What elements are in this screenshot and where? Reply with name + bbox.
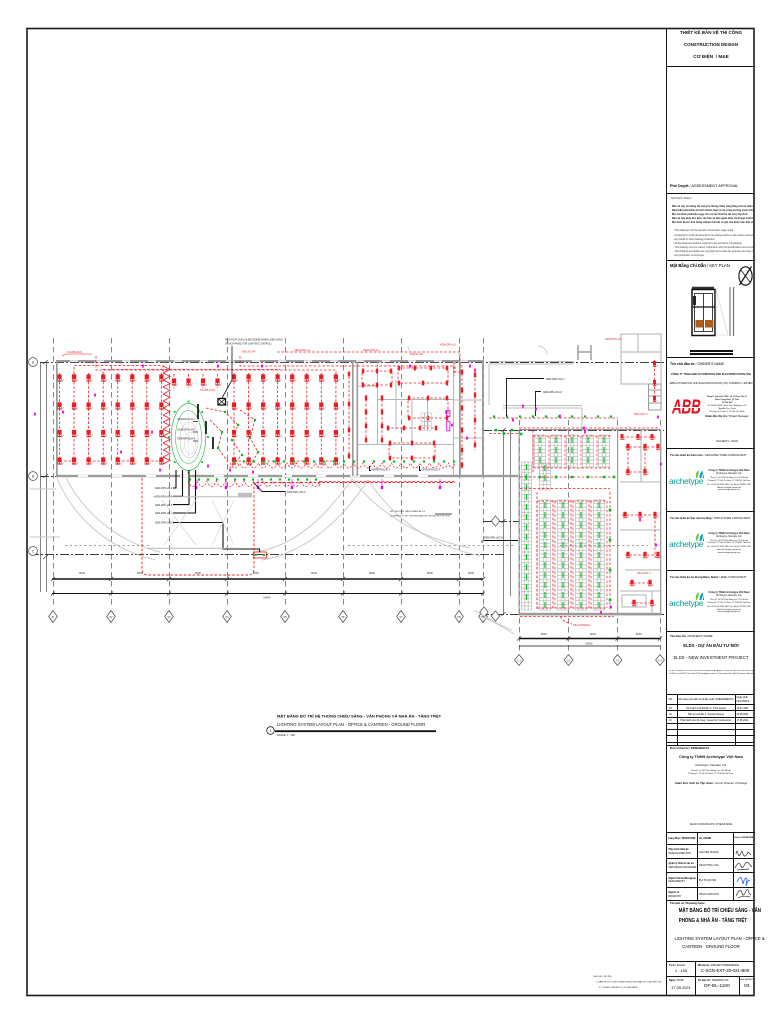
svg-text:KEM-DPN-LM-2: KEM-DPN-LM-2: [178, 429, 196, 432]
svg-text:CS-DB-LIGN: CS-DB-LIGN: [67, 350, 82, 354]
svg-text:DB-CANTEEN: DB-CANTEEN: [573, 623, 590, 627]
svg-text:8000: 8000: [636, 632, 642, 636]
svg-text:KEM-DPN-L8: KEM-DPN-L8: [605, 337, 621, 341]
svg-text:SCALE: 1 : 150: SCALE: 1 : 150: [277, 733, 295, 737]
svg-text:KEM-DPN-LNC-2: KEM-DPN-LNC-2: [287, 491, 306, 494]
svg-text:8000: 8000: [541, 632, 547, 636]
svg-text:8000: 8000: [195, 571, 201, 575]
svg-text:KEM-DPN-LNC-7: KEM-DPN-LNC-7: [546, 378, 565, 381]
svg-text:KEM-DPN-L6: KEM-DPN-L6: [440, 343, 456, 347]
svg-text:8000: 8000: [427, 571, 433, 575]
svg-text:02: 02: [109, 615, 113, 619]
svg-text:C4: C4: [658, 659, 662, 663]
svg-text:C3: C3: [616, 659, 620, 663]
svg-text:1: 1: [270, 729, 272, 733]
svg-text:KY THUAT / REFER TO COORDINATE: KY THUAT / REFER TO COORDINATE: [599, 986, 638, 989]
svg-text:8000: 8000: [590, 632, 596, 636]
svg-text:1. BAN VE THI CONG THAM CHIEU: 1. BAN VE THI CONG THAM CHIEU DEN BAN VE…: [596, 981, 662, 984]
svg-text:KEM-DPN-LNC-3: KEM-DPN-LNC-3: [372, 469, 391, 472]
svg-text:KEM-DPN-L4: KEM-DPN-L4: [363, 348, 379, 352]
svg-text:8000: 8000: [79, 571, 85, 575]
svg-text:KEM-DPN-LNC-1: KEM-DPN-LNC-1: [155, 522, 174, 525]
svg-text:GHI CHU / NOTES:: GHI CHU / NOTES:: [593, 976, 613, 978]
svg-text:DB-CANT-1: DB-CANT-1: [637, 571, 651, 575]
svg-text:05: 05: [283, 615, 287, 619]
svg-text:06: 06: [341, 615, 345, 619]
svg-text:KEM-DPN-LNC-4: KEM-DPN-LNC-4: [422, 469, 441, 472]
svg-text:LIGHTING SYSTEM LAYOUT PLAN -: LIGHTING SYSTEM LAYOUT PLAN - OFFICE & C…: [277, 722, 425, 727]
svg-text:DB-LIG-2/4: DB-LIG-2/4: [242, 350, 256, 354]
svg-text:KEM-DPN-LNC-8: KEM-DPN-LNC-8: [543, 391, 562, 394]
svg-text:KICH HOAT QUA (CB ENCODER) WHE: KICH HOAT QUA (CB ENCODER) WHEN CHIEU SA…: [225, 339, 283, 342]
svg-text:KEM-DPN-LM-7: KEM-DPN-LM-7: [155, 512, 173, 515]
svg-text:(TOUCH PANEL FOR LIGHTING CONT: (TOUCH PANEL FOR LIGHTING CONTROL): [225, 343, 272, 346]
svg-text:KEM-DPN-LM-3: KEM-DPN-LM-3: [178, 438, 196, 441]
svg-text:KEM-DPN-LM-4: KEM-DPN-LM-4: [155, 487, 173, 490]
svg-text:03: 03: [167, 615, 171, 619]
svg-text:MẶT BẰNG BỐ TRÍ HỆ THỐNG CHIẾU: MẶT BẰNG BỐ TRÍ HỆ THỐNG CHIẾU SÁNG - VĂ…: [277, 714, 442, 719]
svg-text:KET NOI DEN TREN TRAN DAI S.1: KET NOI DEN TREN TRAN DAI S.1: [390, 510, 426, 513]
svg-text:CONNECT TO UP LIGHTING ABOVE C: CONNECT TO UP LIGHTING ABOVE CEILING HCP…: [390, 515, 450, 518]
svg-text:50800: 50800: [263, 596, 271, 600]
svg-text:KEM-DPN-L2: KEM-DPN-L2: [294, 348, 310, 352]
svg-text:CS-DB-LIGN: CS-DB-LIGN: [200, 388, 215, 392]
svg-text:8000: 8000: [468, 571, 474, 575]
svg-text:8000: 8000: [311, 571, 317, 575]
svg-text:24000: 24000: [585, 641, 593, 645]
svg-text:07: 07: [399, 615, 403, 619]
svg-text:04: 04: [225, 615, 229, 619]
svg-text:C2: C2: [567, 659, 571, 663]
svg-text:08: 08: [457, 615, 461, 619]
svg-text:KEM-DPN-LM-6: KEM-DPN-LM-6: [155, 504, 173, 507]
svg-text:KEM-DPN-LM-1: KEM-DPN-LM-1: [178, 418, 196, 421]
svg-text:C1: C1: [517, 659, 521, 663]
svg-text:01: 01: [51, 615, 55, 619]
svg-text:KEM-DPN-LNC-9: KEM-DPN-LNC-9: [484, 537, 503, 540]
svg-text:8000: 8000: [369, 571, 375, 575]
svg-text:DB-CANT-2: DB-CANT-2: [634, 412, 648, 416]
